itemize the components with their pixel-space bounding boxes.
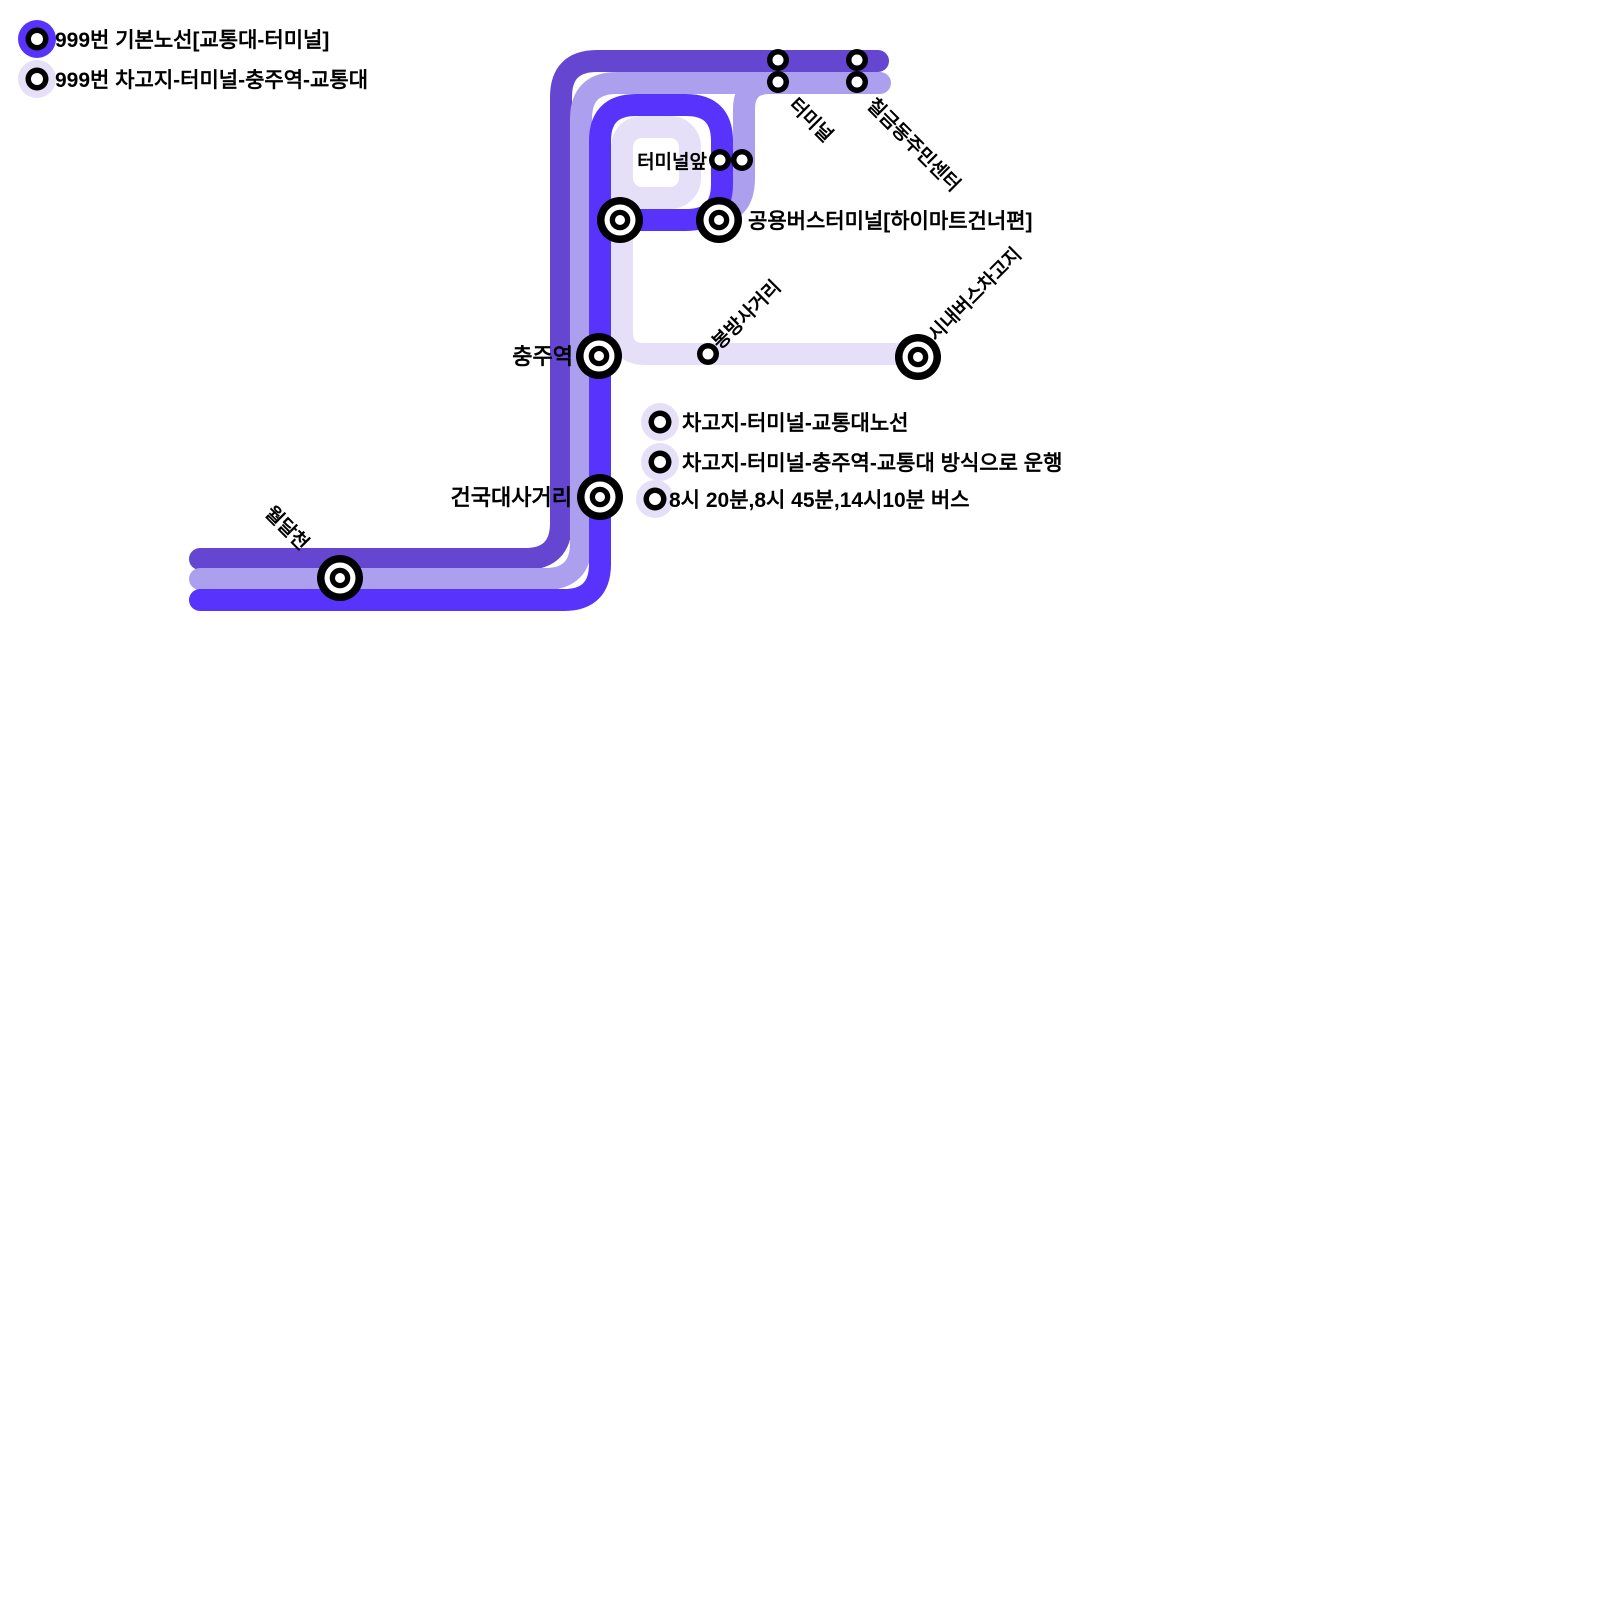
legend-label-basic: 999번 기본노선[교통대-터미널] xyxy=(55,29,329,52)
stop-marker-terminal-2 xyxy=(767,71,789,93)
routes xyxy=(200,61,918,600)
note-label-2: 차고지-터미널-충주역-교통대 방식으로 운행 xyxy=(682,452,1062,475)
legend-top-left: 999번 기본노선[교통대-터미널] 999번 차고지-터미널-충주역-교통대 xyxy=(18,20,368,98)
notes-legend: 차고지-터미널-교통대노선 차고지-터미널-충주역-교통대 방식으로 운행 8시… xyxy=(636,403,1062,518)
station-label-terminal-front: 터미널앞 xyxy=(637,151,707,173)
stop-marker-terminal-1 xyxy=(767,49,789,71)
stop-marker-chilgeumdong-1 xyxy=(846,49,868,71)
station-marker-public-bus-terminal xyxy=(696,197,742,243)
note-label-1: 차고지-터미널-교통대노선 xyxy=(682,412,909,435)
note-icon-1 xyxy=(649,411,672,434)
legend-label-garage-route: 999번 차고지-터미널-충주역-교통대 xyxy=(55,69,368,92)
stop-marker-terminal-front-2 xyxy=(731,149,753,171)
note-icon-2 xyxy=(649,451,672,474)
note-label-3: 8시 20분,8시 45분,14시10분 버스 xyxy=(669,489,970,512)
route-map: 999번 기본노선[교통대-터미널] 999번 차고지-터미널-충주역-교통대 … xyxy=(0,0,1600,1600)
route-line-light-branch xyxy=(727,83,770,211)
note-icon-3 xyxy=(644,488,667,511)
station-label-city-bus-garage: 시내버스차고지 xyxy=(924,243,1026,345)
stop-marker-chilgeumdong-2 xyxy=(846,71,868,93)
station-marker-chungju-station xyxy=(576,333,622,379)
station-marker-loop-west xyxy=(597,197,643,243)
station-label-bongbang-crossroads: 봉방사거리 xyxy=(708,276,785,353)
route-map-canvas: 999번 기본노선[교통대-터미널] 999번 차고지-터미널-충주역-교통대 … xyxy=(0,0,1600,1600)
legend-icon-garage-route xyxy=(26,68,49,91)
legend-icon-basic xyxy=(26,28,49,51)
station-label-woldalcheon: 월달천 xyxy=(260,502,313,555)
station-label-chilgeumdong-center: 칠금동주민센터 xyxy=(862,94,964,196)
station-label-konkuk-crossroads: 건국대사거리 xyxy=(451,485,572,510)
station-label-public-bus-terminal: 공용버스터미널[하이마트건너편] xyxy=(748,210,1032,233)
station-label-chungju-station: 충주역 xyxy=(512,344,573,369)
station-marker-woldalcheon xyxy=(317,555,363,601)
stop-marker-terminal-front-1 xyxy=(709,149,731,171)
station-label-terminal: 터미널 xyxy=(784,94,837,147)
station-marker-konkuk-crossroads xyxy=(577,474,623,520)
